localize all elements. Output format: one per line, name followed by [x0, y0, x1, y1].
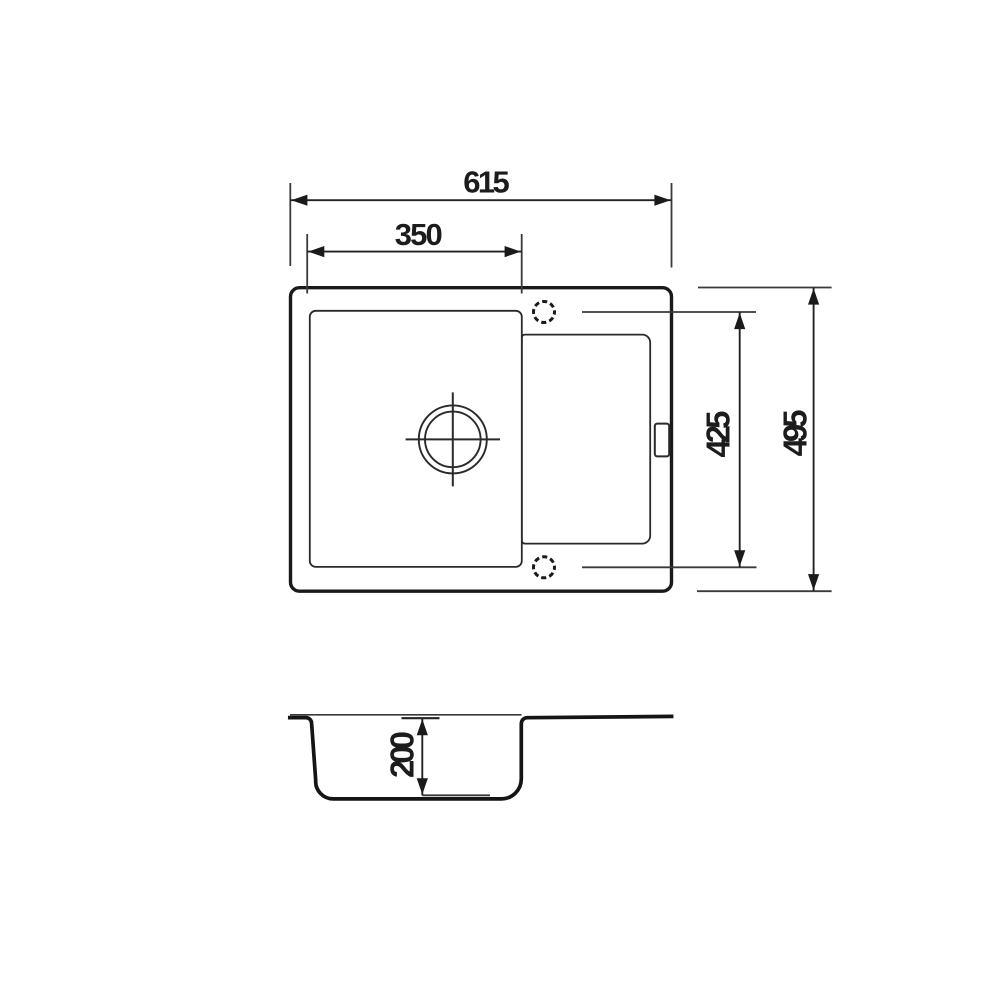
svg-text:200: 200: [384, 731, 421, 778]
svg-text:495: 495: [777, 409, 814, 456]
svg-text:350: 350: [395, 217, 443, 252]
svg-text:615: 615: [463, 165, 510, 200]
svg-text:425: 425: [700, 411, 737, 458]
